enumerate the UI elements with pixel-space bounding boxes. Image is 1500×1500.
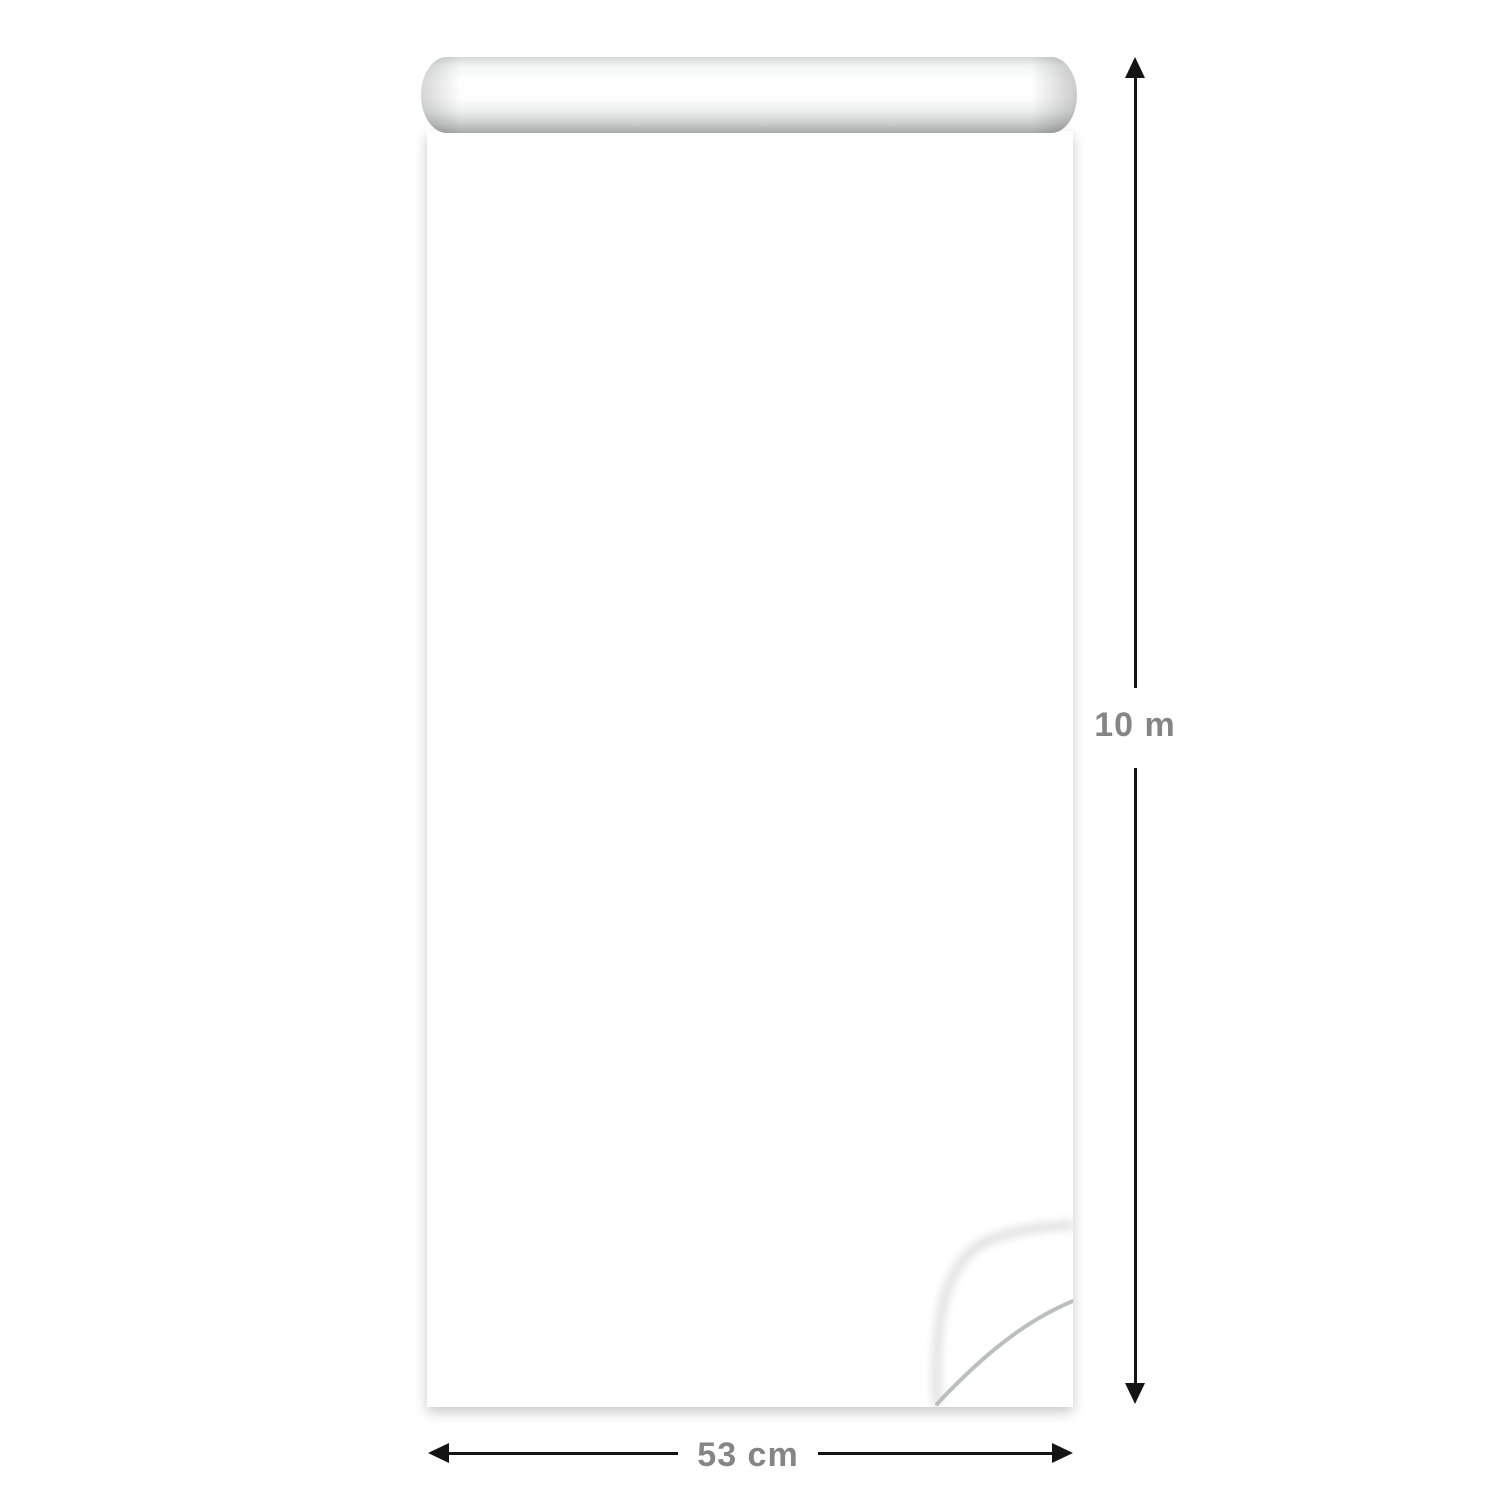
tribal-pattern (427, 131, 1073, 1407)
height-label: 10 m (1055, 706, 1215, 745)
arrowhead-up-icon (1125, 57, 1145, 78)
height-arrow-line-bottom (1134, 768, 1137, 1384)
width-label: 53 cm (668, 1436, 828, 1475)
width-arrow-line-left (447, 1452, 678, 1455)
width-arrow-line-right (818, 1452, 1053, 1455)
arrowhead-left-icon (428, 1443, 449, 1463)
arrowhead-down-icon (1125, 1383, 1145, 1404)
product-image: 10 m 53 cm (0, 0, 1500, 1500)
page-curl (936, 1225, 1073, 1407)
wallpaper-pattern-panel (427, 131, 1073, 1407)
arrowhead-right-icon (1052, 1443, 1073, 1463)
roll-top-cylinder (421, 57, 1077, 133)
height-arrow-line-top (1134, 76, 1137, 688)
